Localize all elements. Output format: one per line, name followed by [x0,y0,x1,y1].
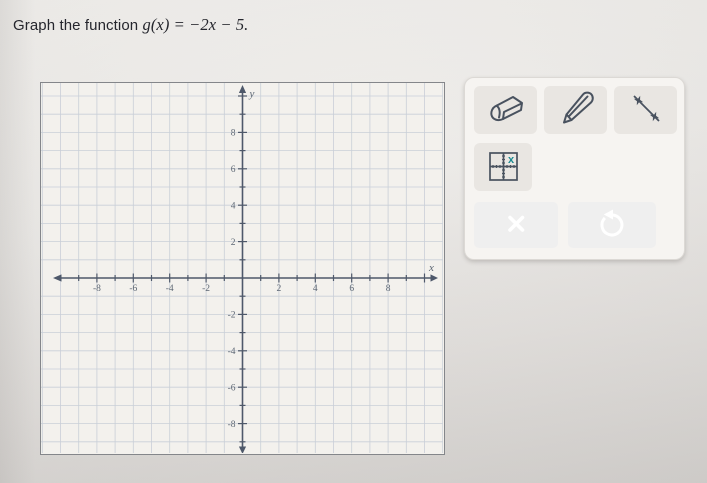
eraser-icon [483,92,529,129]
line-tool-button[interactable] [614,86,677,134]
undo-button[interactable] [568,202,656,248]
graph-tool-badge: x [508,154,515,166]
svg-text:-2: -2 [202,284,210,294]
svg-text:-4: -4 [166,284,174,294]
mini-axes-icon: x [483,146,523,189]
svg-text:x: x [428,262,434,274]
pencil-tool-button[interactable] [544,86,607,134]
svg-text:8: 8 [386,284,391,294]
svg-text:-2: -2 [228,311,236,321]
tool-row-primary [474,86,684,134]
svg-text:-8: -8 [93,284,101,294]
function-expression: g(x) = −2x − 5. [142,15,248,34]
svg-text:8: 8 [231,129,236,139]
eraser-tool-button[interactable] [474,86,537,134]
problem-text: Graph the function [13,17,142,34]
page-background: Graph the function g(x) = −2x − 5. -8-6-… [0,0,707,483]
svg-text:-8: -8 [228,420,236,430]
svg-text:2: 2 [231,238,236,248]
svg-text:-4: -4 [228,347,236,357]
svg-text:6: 6 [349,284,354,294]
graph-canvas[interactable]: -8-6-4-22468-8-6-4-22468yx [40,82,445,455]
svg-text:y: y [249,88,255,100]
undo-arrow-icon [592,204,632,247]
svg-text:4: 4 [231,201,236,211]
x-mark-icon [496,204,536,247]
svg-text:-6: -6 [228,383,236,393]
graph-tool-button[interactable]: x [474,143,532,191]
svg-text:-6: -6 [129,284,137,294]
action-row [474,202,684,248]
svg-text:6: 6 [231,165,236,175]
clear-button[interactable] [474,202,558,248]
problem-statement: Graph the function g(x) = −2x − 5. [13,15,248,35]
svg-text:2: 2 [277,284,282,294]
pencil-icon [556,89,596,132]
tool-palette: x [464,77,685,260]
tool-row-secondary: x [474,143,684,191]
line-segment-icon [626,89,666,132]
coordinate-grid[interactable]: -8-6-4-22468-8-6-4-22468yx [41,83,443,453]
svg-text:4: 4 [313,284,318,294]
